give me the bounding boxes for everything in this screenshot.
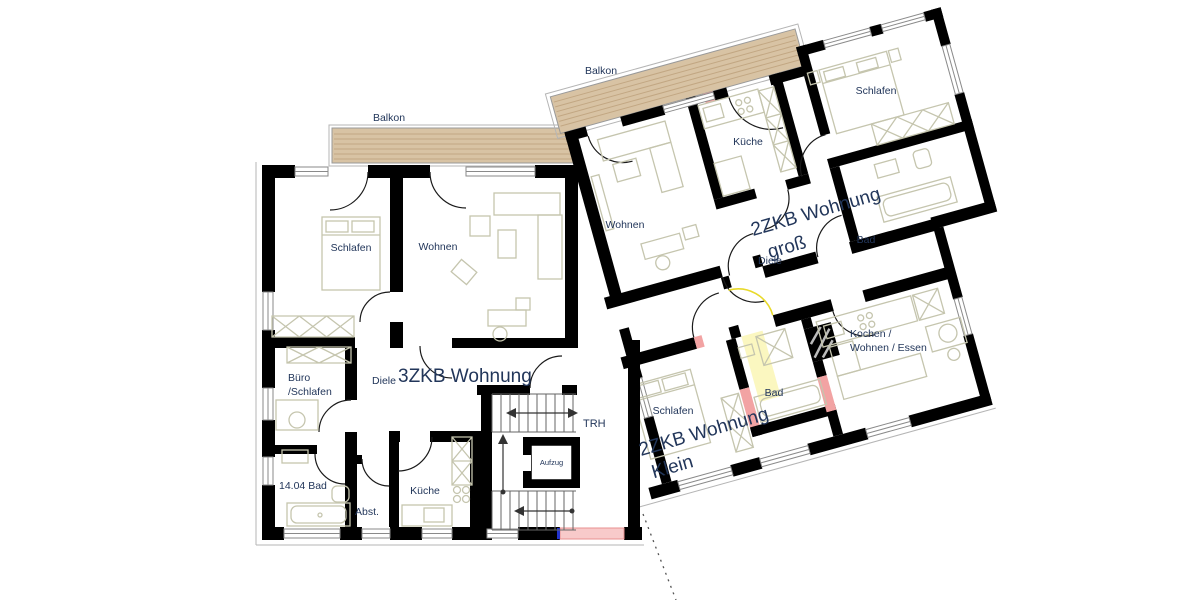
left-block-furniture (272, 193, 562, 526)
site-boundary-dotted-line (643, 514, 676, 600)
kueche-3zkb-label: Küche (410, 485, 440, 497)
trh-label: TRH (583, 418, 606, 430)
schlafen-3zkb-label: Schlafen (331, 242, 372, 254)
kueche-gross-label: Küche (733, 136, 763, 148)
schlafen-gross-label: Schlafen (856, 85, 897, 97)
floor-plan-canvas: Balkon Balkon Schlafen Wohnen Büro /Schl… (0, 0, 1200, 600)
buero-label-line1: Büro (288, 372, 310, 384)
schlafen-klein-label: Schlafen (653, 405, 694, 417)
abstellraum-label: Abst. (355, 506, 379, 518)
annotation-3zkb: 3ZKB Wohnung (398, 366, 532, 387)
kochen-label-line1: Kochen / (850, 328, 892, 340)
aufzug-label: Aufzug (540, 458, 563, 467)
diele-3zkb-label: Diele (372, 375, 396, 387)
annotation-2zkb-gross-line1: 2ZKB Wohnung (749, 184, 883, 241)
stairwell (492, 394, 580, 530)
balcony-left-label: Balkon (373, 112, 405, 124)
bad-klein-label: Bad (765, 387, 784, 399)
wohnen-gross-label: Wohnen (606, 219, 645, 231)
wohnen-3zkb-label: Wohnen (419, 241, 458, 253)
balcony-left (329, 125, 578, 166)
kochen-label-line2: Wohnen / Essen (850, 342, 927, 354)
bad-gross-label: Bad (857, 234, 876, 246)
bad-3zkb-label: 14.04 Bad (279, 480, 327, 492)
balcony-right-label: Balkon (585, 65, 617, 77)
buero-label-line2: /Schlafen (288, 386, 332, 398)
yellow-door-arc (728, 281, 772, 325)
